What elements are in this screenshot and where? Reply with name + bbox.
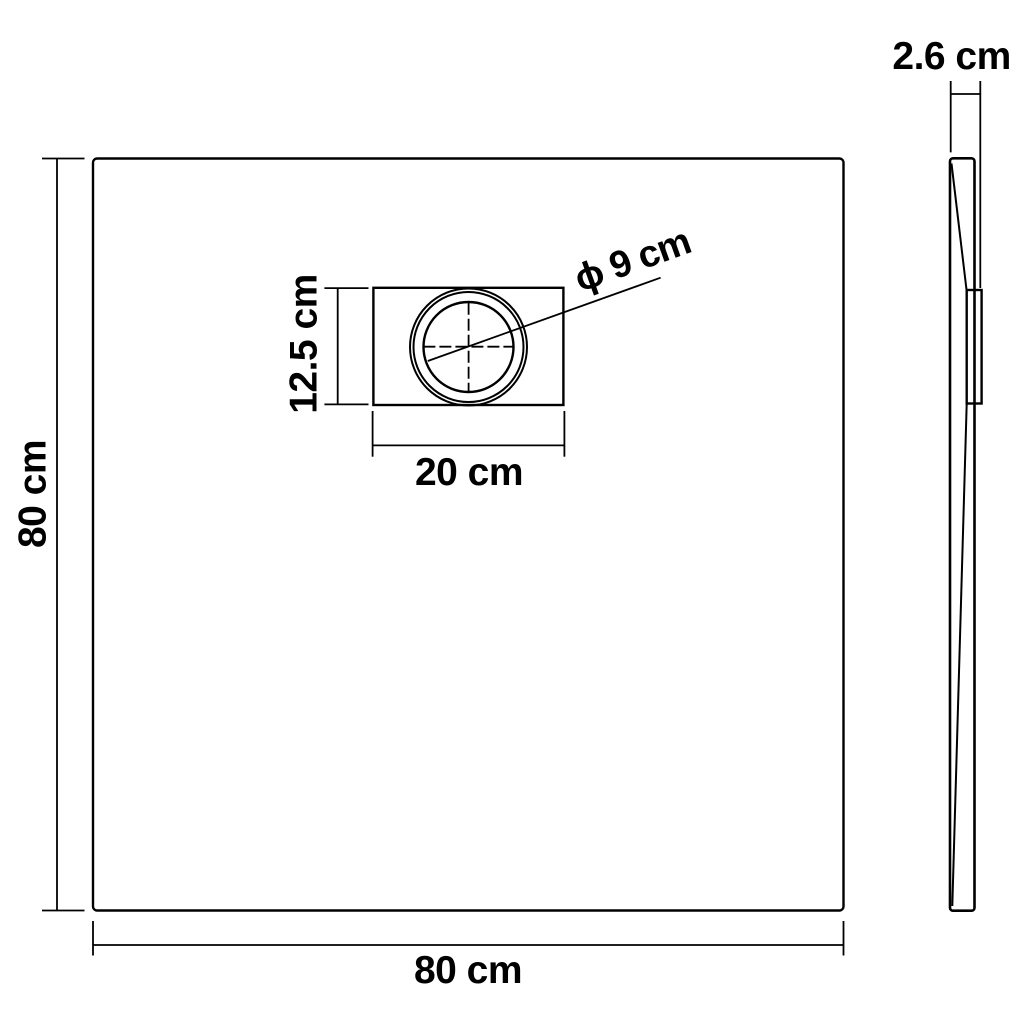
svg-text:12.5 cm: 12.5 cm [283,274,326,414]
svg-text:80 cm: 80 cm [414,949,522,992]
svg-text:80 cm: 80 cm [12,440,55,548]
svg-text:20 cm: 20 cm [415,451,523,494]
svg-text:2.6 cm: 2.6 cm [892,35,1010,78]
